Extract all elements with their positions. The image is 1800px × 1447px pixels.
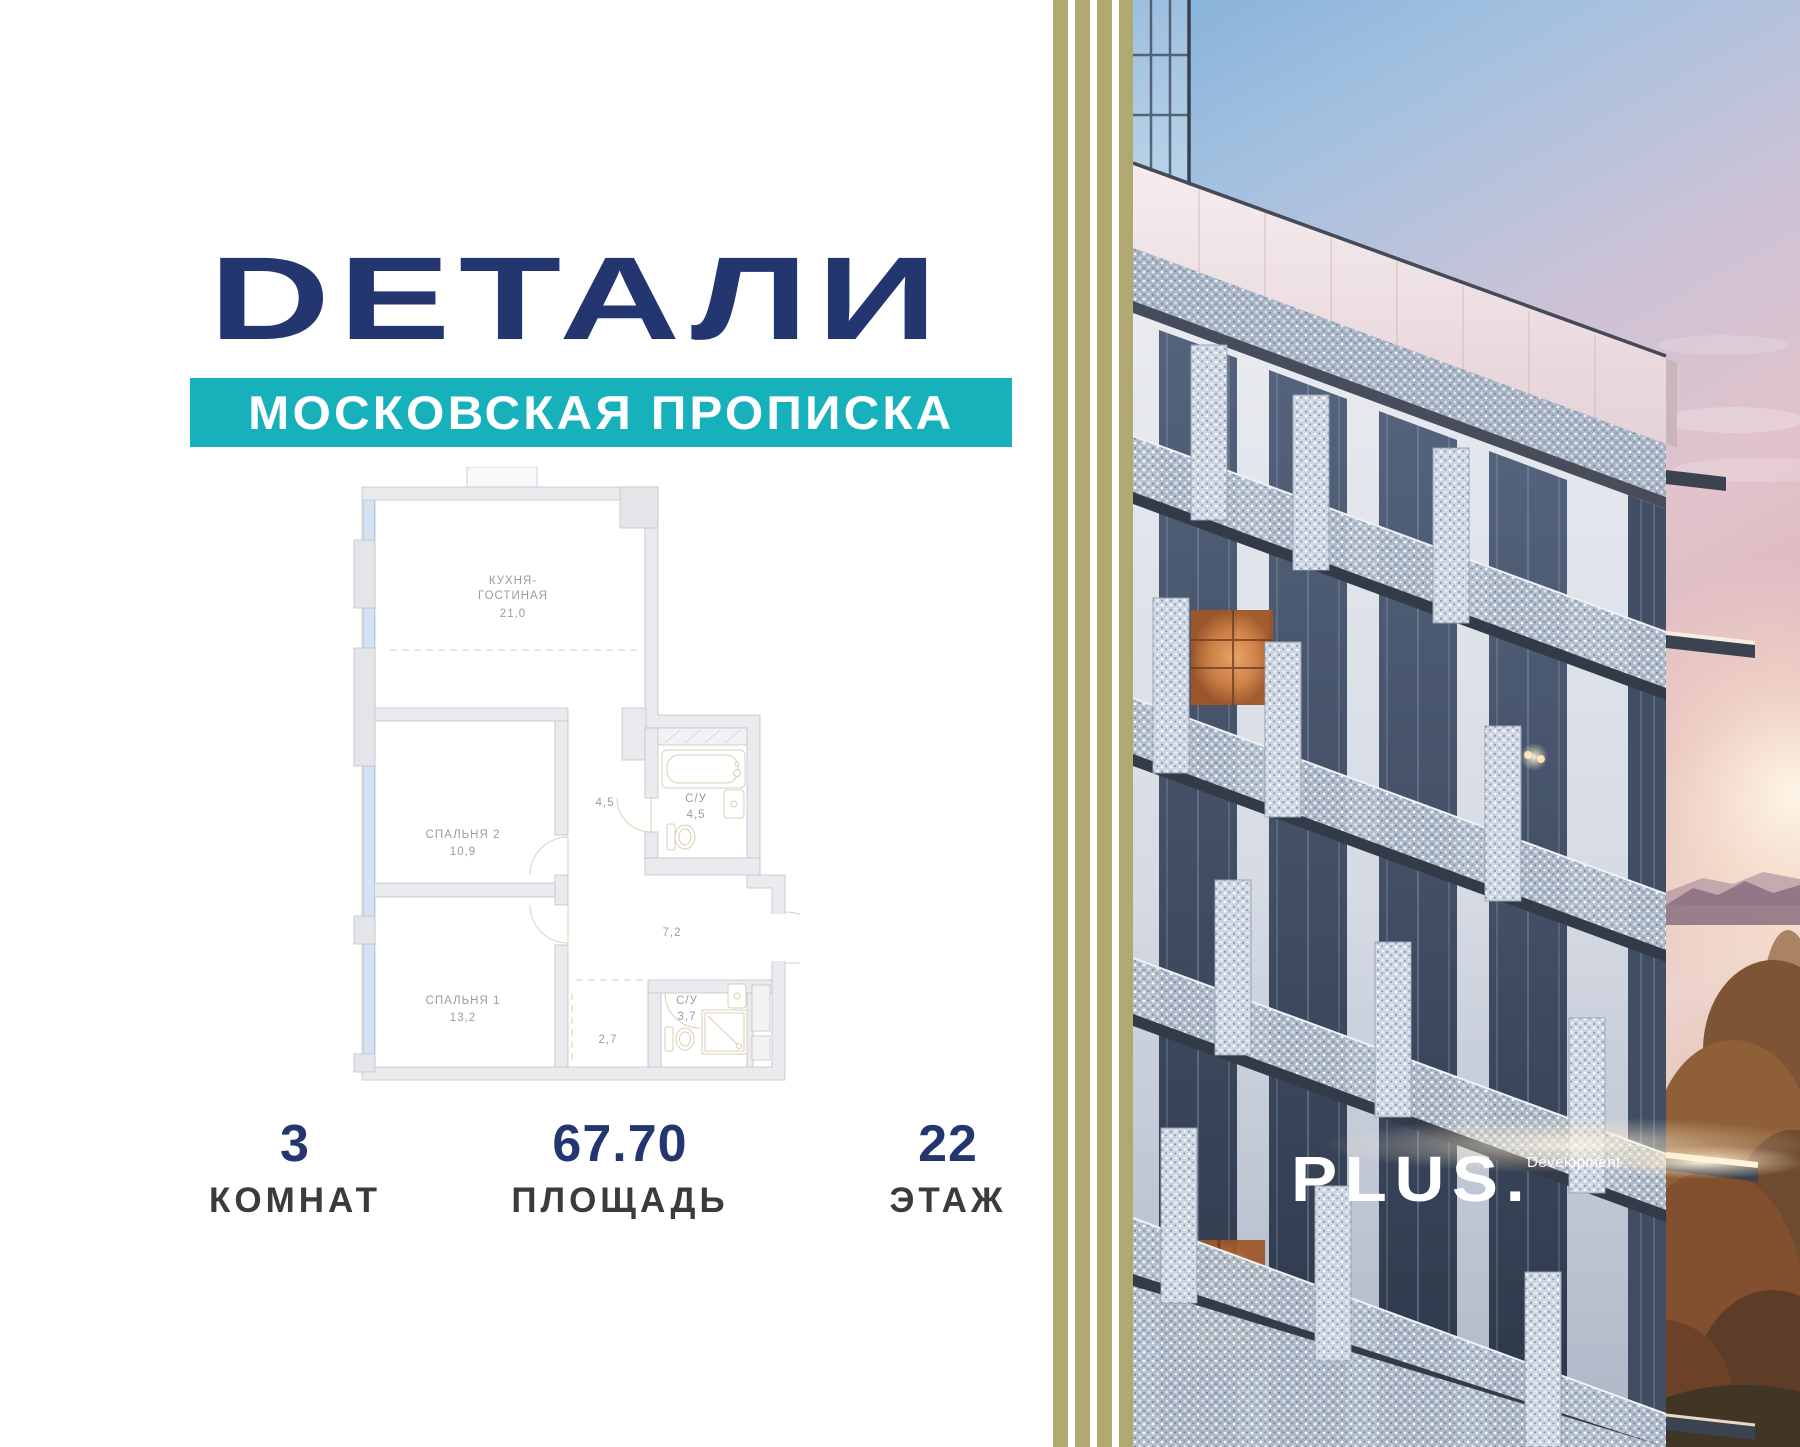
brand-logo-text: DЕТАЛИ — [209, 240, 946, 358]
stripe-bar — [1097, 0, 1112, 1447]
stat-rooms-label: КОМНАТ — [209, 1183, 381, 1218]
left-panel: DЕТАЛИ МОСКОВСКАЯ ПРОПИСКА — [0, 0, 1053, 1447]
floor-plan-windows — [354, 500, 375, 1072]
zone-area-corridor: 7,2 — [663, 927, 682, 939]
stat-area: 67.70 ПЛОЩАДЬ — [511, 1118, 728, 1218]
stat-floor: 22 ЭТАЖ — [890, 1118, 1007, 1218]
brand-logo: DЕТАЛИ — [140, 240, 1015, 358]
developer-logo: PLUS. — [1291, 1147, 1514, 1211]
room-area-bath-top: 4,5 — [687, 809, 706, 821]
stat-floor-value: 22 — [890, 1118, 1007, 1170]
stripe-bar — [1053, 0, 1068, 1447]
room-area-bedroom2: 10,9 — [450, 846, 476, 858]
stat-area-value: 67.70 — [511, 1118, 728, 1170]
developer-brand: PLUS. — [1291, 1147, 1532, 1211]
room-label-bedroom1: СПАЛЬНЯ 1 — [426, 995, 501, 1007]
stat-floor-label: ЭТАЖ — [890, 1183, 1007, 1218]
room-area-bath-bottom: 3,7 — [678, 1011, 697, 1023]
floor-plan: КУХНЯ- ГОСТИНАЯ 21,0 СПАЛЬНЯ 2 10,9 СПАЛ… — [300, 467, 800, 1100]
room-area-bedroom1: 13,2 — [450, 1012, 476, 1024]
room-label-kitchen-2: ГОСТИНАЯ — [478, 590, 548, 602]
zone-area-hall-small: 2,7 — [599, 1034, 618, 1046]
room-label-kitchen-1: КУХНЯ- — [489, 575, 537, 587]
zone-area-hall: 4,5 — [596, 797, 615, 809]
building-photo — [1133, 0, 1800, 1447]
flyer-page: DЕТАЛИ МОСКОВСКАЯ ПРОПИСКА — [0, 0, 1800, 1447]
stripe-bar — [1119, 0, 1134, 1447]
room-label-bath-top: С/У — [685, 793, 707, 805]
room-area-kitchen: 21,0 — [500, 608, 526, 620]
stat-rooms: 3 КОМНАТ — [209, 1118, 381, 1218]
subtitle-banner: МОСКОВСКАЯ ПРОПИСКА — [190, 378, 1012, 447]
subtitle-banner-text: МОСКОВСКАЯ ПРОПИСКА — [248, 385, 954, 440]
room-label-bedroom2: СПАЛЬНЯ 2 — [426, 829, 501, 841]
stripe-bar — [1075, 0, 1090, 1447]
stat-area-label: ПЛОЩАДЬ — [511, 1183, 728, 1218]
developer-suffix: Development — [1527, 1154, 1621, 1171]
stat-rooms-value: 3 — [209, 1118, 381, 1170]
room-label-bath-bottom: С/У — [676, 995, 698, 1007]
